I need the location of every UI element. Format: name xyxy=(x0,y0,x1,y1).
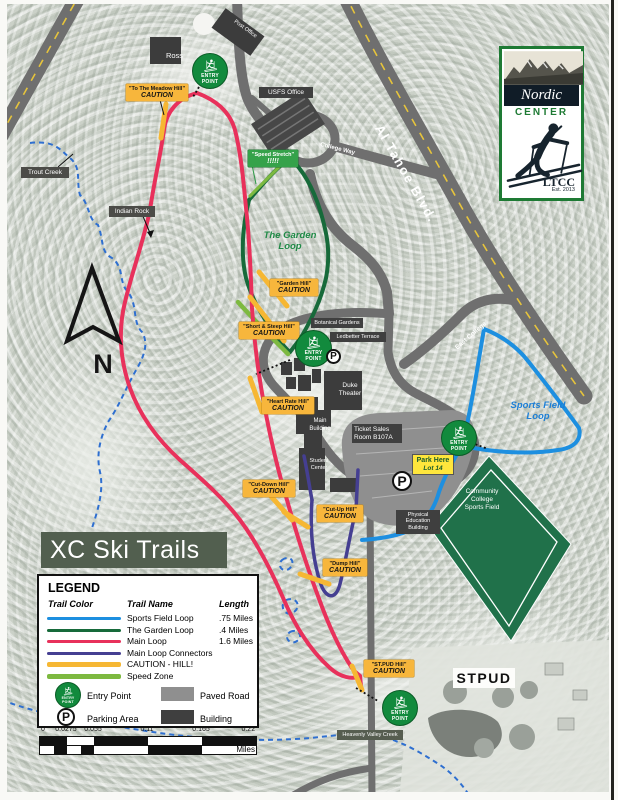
garden-loop-name: The GardenLoop xyxy=(260,230,320,253)
entry-point-marker: ENTRYPOINT xyxy=(382,690,418,726)
legend-row-length: .75 Miles xyxy=(219,613,253,623)
ledbetter-terrace-label: Ledbetter Terrace xyxy=(330,332,386,342)
skier-icon xyxy=(451,425,468,440)
caution-stpud-hill: "ST.PUD Hill"CAUTION xyxy=(364,660,414,677)
main-building-label: MainBuilding xyxy=(301,418,339,433)
legend-parking-icon: P xyxy=(57,708,75,726)
physical-education-label: PhysicalEducationBuilding xyxy=(396,510,440,534)
bottom-arc-road xyxy=(282,768,372,792)
logo-nordic-band: Nordic xyxy=(504,85,579,106)
legend-entry-point-icon: ENTRYPOINT xyxy=(55,682,81,708)
north-arrow xyxy=(67,268,119,341)
logo-skier-art: LTCC Est. 2013 xyxy=(504,119,579,196)
stpud-area xyxy=(400,640,609,792)
legend-building-swatch xyxy=(161,710,194,724)
caution-meadow-hill: "To The Meadow Hill"CAUTION xyxy=(126,84,188,101)
entry-point-marker: ENTRYPOINT xyxy=(441,420,477,456)
scanned-trail-map-page: { "page": {"title": "XC Ski Trails"}, "l… xyxy=(0,0,618,800)
south-road xyxy=(370,500,372,792)
skier-icon xyxy=(305,335,322,350)
legend-row-name: Sports Field Loop xyxy=(127,613,194,623)
legend-swatch-garden xyxy=(47,629,121,632)
legend-paved-road-swatch xyxy=(161,687,194,701)
legend-col-name: Trail Name xyxy=(127,599,173,609)
speed-stretch-label: "Speed Stretch"!!!!! xyxy=(248,150,298,167)
ticket-sales-label: Ticket SalesRoom B107A xyxy=(352,424,402,443)
indian-rock-label: Indian Rock xyxy=(109,206,155,217)
legend-row-name: Main Loop Connectors xyxy=(127,648,213,658)
top-left-road xyxy=(7,4,82,158)
entry-point-marker: ENTRYPOINT xyxy=(295,330,332,367)
student-center-label: StudentCenter xyxy=(305,458,333,472)
scale-bar: 0 0.0275 0.055 0.11 0.165 0.22 Miles xyxy=(37,726,259,758)
mountain-icon xyxy=(504,51,583,85)
legend-swatch-main xyxy=(47,640,121,643)
logo-center-band: CENTER xyxy=(504,106,579,119)
legend-col-length: Length xyxy=(219,599,249,609)
usfs-office-label: USFS Office xyxy=(259,87,313,98)
legend-heading: LEGEND xyxy=(48,581,100,595)
legend-entry-point-label: Entry Point xyxy=(87,691,131,701)
legend-col-color: Trail Color xyxy=(48,599,93,609)
caution-garden-hill: "Garden Hill"CAUTION xyxy=(270,279,318,296)
caution-short-steep-hill: "Short & Steep Hill"CAUTION xyxy=(239,322,299,339)
legend-swatch-connectors xyxy=(47,652,121,655)
logo-ltcc: LTCC Est. 2013 xyxy=(543,176,575,194)
heavenly-creek-label: Heavenly Valley Creek xyxy=(337,730,403,740)
skier-icon xyxy=(202,58,219,73)
legend-building-label: Building xyxy=(200,714,232,724)
trail-map: N Ross Post Office USFS Office Trout Cre… xyxy=(7,4,609,792)
nordic-center-logo: Nordic CENTER LTCC xyxy=(499,46,584,201)
legend-row-length: .4 Miles xyxy=(219,625,248,635)
sports-field-label: CommunityCollegeSports Field xyxy=(451,488,513,512)
ross-label: Ross xyxy=(157,49,192,61)
scale-bar-unit: Miles xyxy=(202,746,256,754)
usfs-building xyxy=(251,90,325,157)
trout-creek-line xyxy=(30,142,145,528)
logo-mountain-art xyxy=(504,51,579,85)
legend-parking-label: Parking Area xyxy=(87,714,139,724)
legend-box: LEGEND Trail Color Trail Name Length Spo… xyxy=(37,574,259,728)
duke-theater-label: DukeTheater xyxy=(331,382,369,398)
park-here-sign: Park Here Lot 14 xyxy=(412,454,454,475)
pond-curl xyxy=(280,558,293,570)
legend-row-name: CAUTION - HILL! xyxy=(127,659,193,669)
legend-swatch-sports xyxy=(47,617,121,620)
botanical-gardens-label: Botanical Gardens xyxy=(311,318,363,328)
scan-edge-line xyxy=(611,0,614,800)
north-label: N xyxy=(91,348,115,380)
stpud-label: STPUD xyxy=(453,668,515,688)
indian-rock-arrowhead xyxy=(147,230,154,238)
parking-marker: P xyxy=(326,349,341,364)
legend-row-name: Main Loop xyxy=(127,636,167,646)
skier-icon xyxy=(392,695,409,710)
caution-heart-rate-hill: "Heart Rate Hill"CAUTION xyxy=(262,397,314,414)
map-title: XC Ski Trails xyxy=(41,532,227,568)
caution-cut-up-hill: "Cut-Up Hill"CAUTION xyxy=(317,505,363,522)
legend-row-length: 1.6 Miles xyxy=(219,636,253,646)
pond-curl xyxy=(287,631,300,643)
east-college-road xyxy=(404,299,512,364)
caution-dump-hill: "Dump Hill"CAUTION xyxy=(323,559,367,576)
scale-bar-bottom-row: Miles xyxy=(39,745,257,755)
post-office-dome xyxy=(193,13,215,35)
legend-row-name: The Garden Loop xyxy=(127,625,194,635)
skier-icon xyxy=(62,686,74,696)
legend-swatch-speed xyxy=(47,674,121,679)
legend-paved-road-label: Paved Road xyxy=(200,691,250,701)
sports-field-loop-trail xyxy=(462,329,580,453)
legend-swatch-caution xyxy=(47,662,121,667)
entry-point-marker: ENTRYPOINT xyxy=(192,53,228,89)
trout-creek-label: Trout Creek xyxy=(21,167,69,178)
caution-cut-down-hill: "Cut-Down Hill"CAUTION xyxy=(243,480,295,497)
sports-loop-name: Sports FieldLoop xyxy=(509,400,567,423)
parking-marker: P xyxy=(392,471,412,491)
legend-row-name: Speed Zone xyxy=(127,671,173,681)
